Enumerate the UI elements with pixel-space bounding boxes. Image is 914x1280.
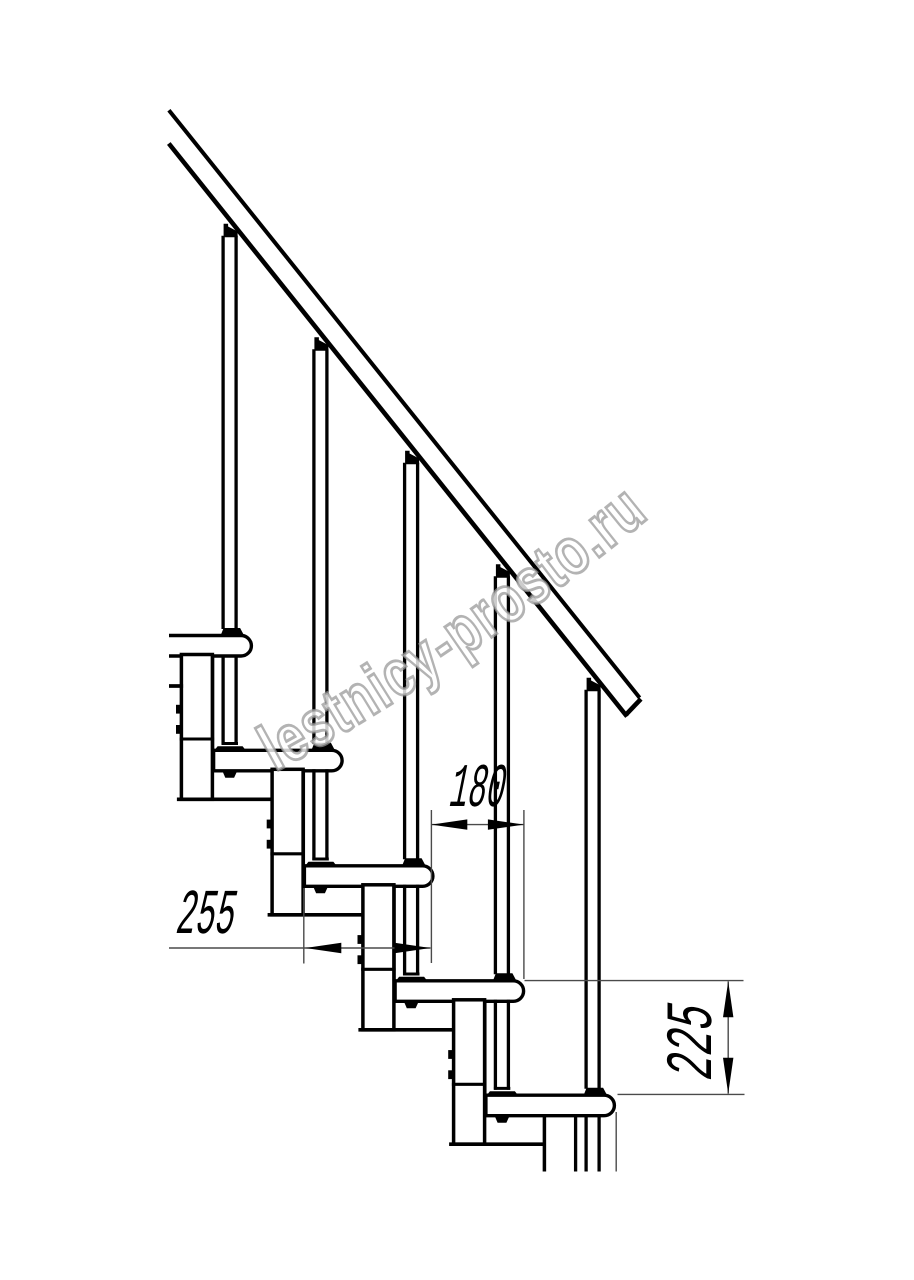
svg-text:225: 225 <box>656 1000 731 1082</box>
svg-text:180: 180 <box>447 754 509 825</box>
svg-text:255: 255 <box>174 881 240 953</box>
